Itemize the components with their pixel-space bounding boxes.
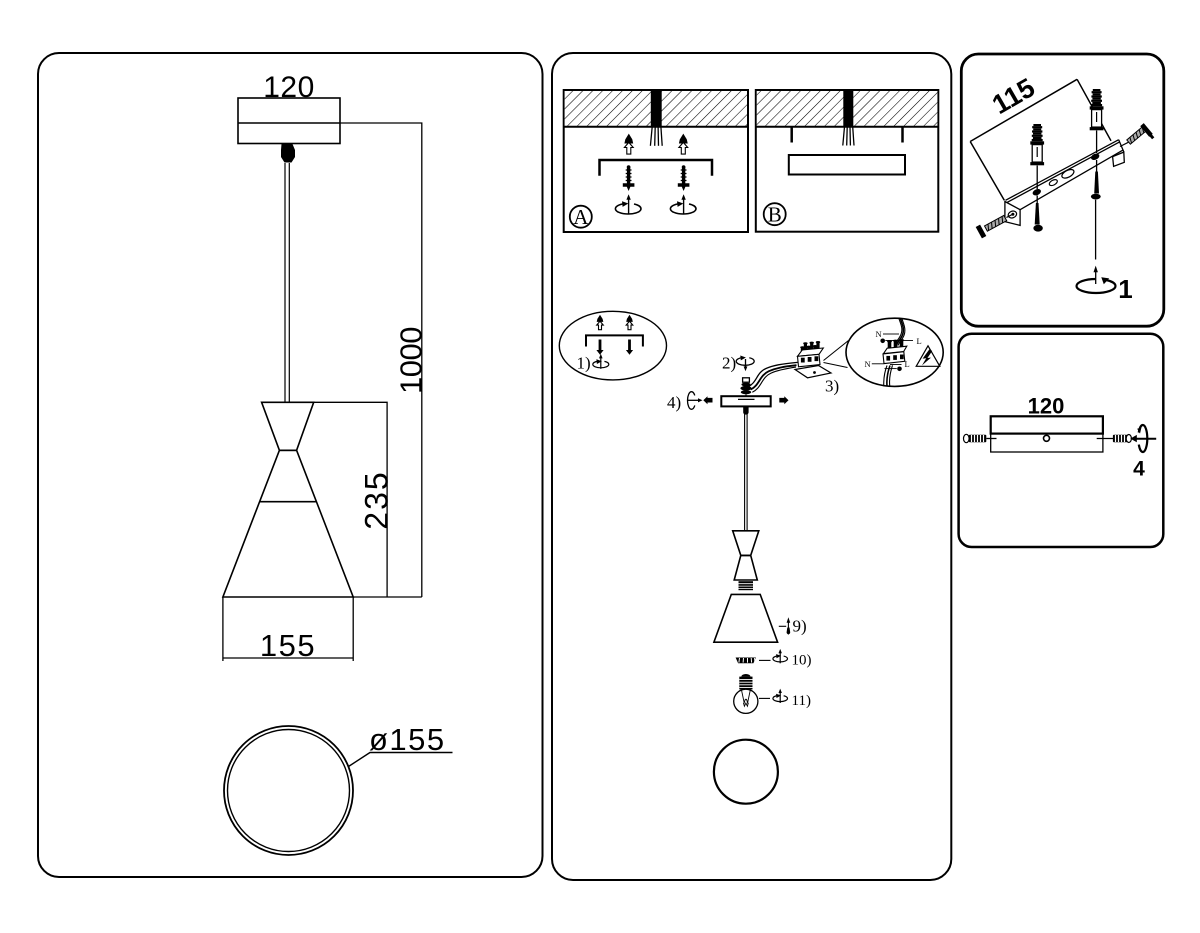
- svg-text:B: B: [768, 203, 782, 227]
- svg-text:155: 155: [260, 628, 316, 663]
- svg-text:1: 1: [1118, 274, 1132, 304]
- svg-text:2): 2): [722, 354, 736, 373]
- svg-text:4): 4): [667, 393, 681, 412]
- svg-text:1000: 1000: [394, 327, 429, 394]
- svg-text:N: N: [865, 359, 871, 369]
- svg-text:A: A: [573, 205, 589, 229]
- svg-text:1): 1): [577, 354, 591, 373]
- svg-text:3): 3): [825, 377, 839, 396]
- svg-text:ø155: ø155: [369, 722, 446, 757]
- svg-text:120: 120: [263, 71, 315, 104]
- svg-text:235: 235: [359, 470, 395, 529]
- svg-text:120: 120: [1028, 394, 1065, 419]
- svg-text:N: N: [876, 329, 882, 339]
- svg-text:4: 4: [1133, 458, 1145, 481]
- svg-text:L: L: [917, 336, 922, 346]
- svg-text:11): 11): [792, 693, 811, 709]
- svg-text:10): 10): [792, 653, 812, 669]
- svg-text:L: L: [905, 359, 910, 369]
- svg-text:9): 9): [793, 617, 807, 636]
